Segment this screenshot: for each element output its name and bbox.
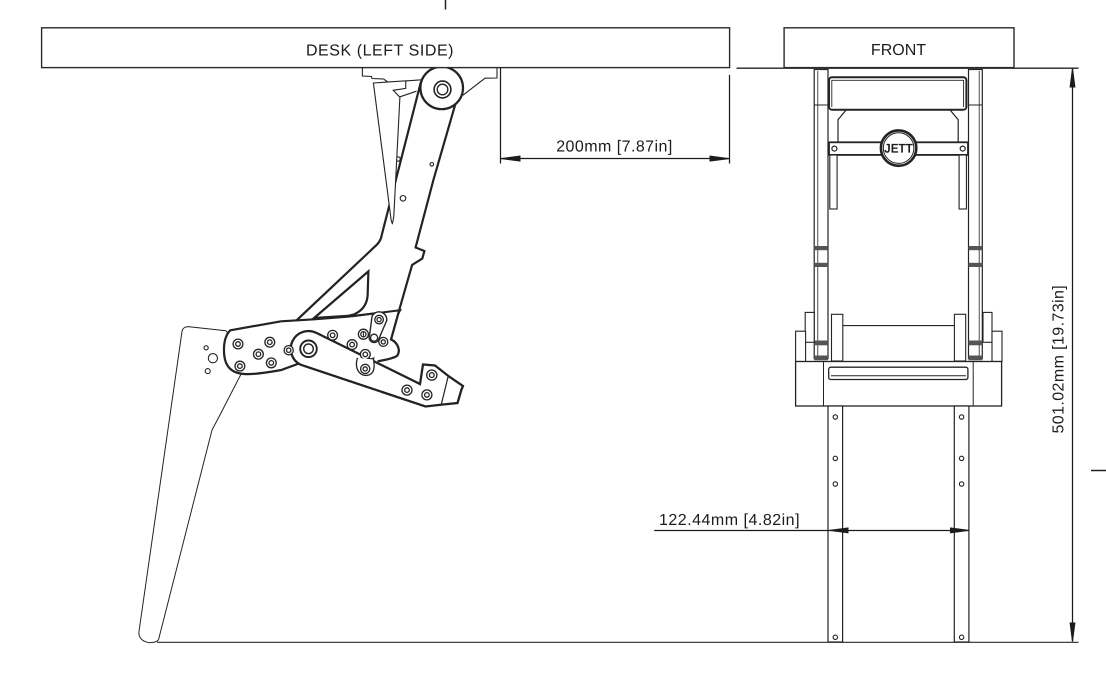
svg-text:FRONT: FRONT (871, 42, 926, 59)
svg-text:DESK (LEFT SIDE): DESK (LEFT SIDE) (306, 42, 454, 59)
svg-text:200mm [7.87in]: 200mm [7.87in] (556, 138, 673, 155)
svg-text:122.44mm [4.82in]: 122.44mm [4.82in] (659, 512, 800, 529)
svg-text:501.02mm [19.73in]: 501.02mm [19.73in] (1051, 285, 1068, 434)
svg-text:JETT: JETT (884, 141, 913, 156)
